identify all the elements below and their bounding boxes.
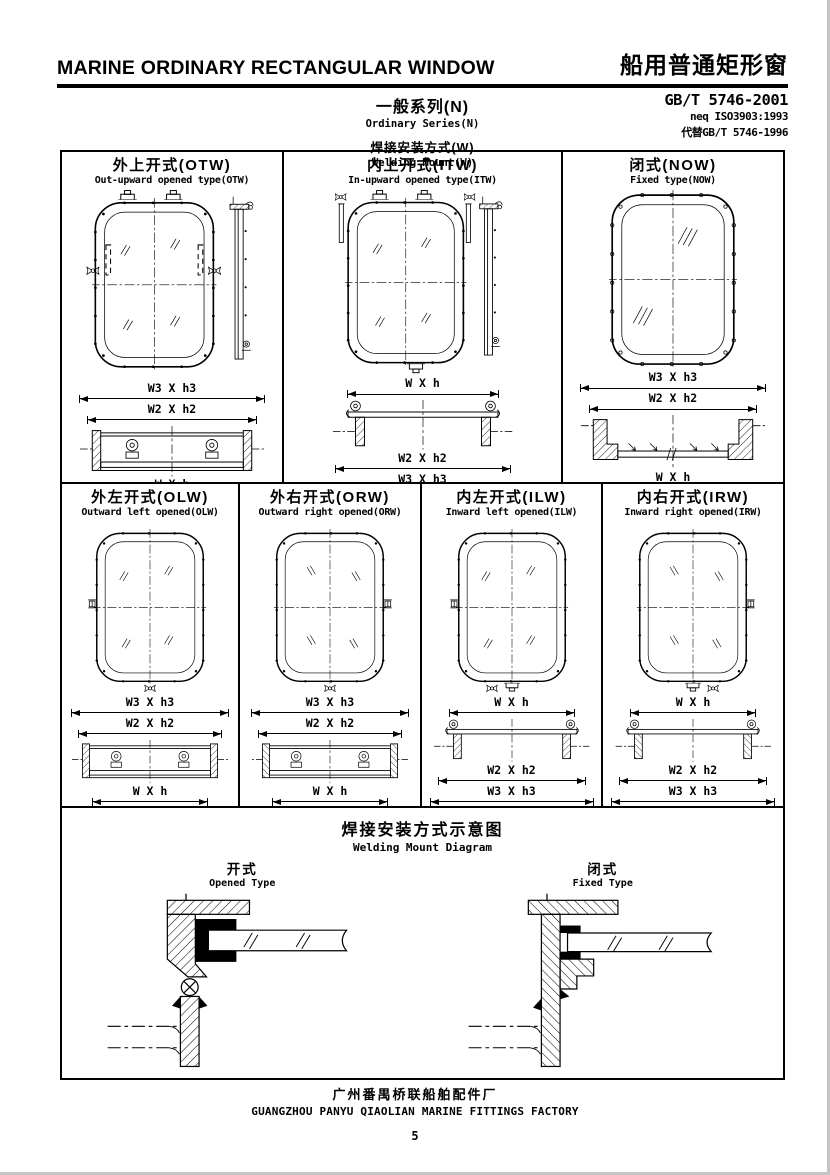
standard-neq: neq ISO3903:1993	[664, 110, 788, 123]
panel-now-title-en: Fixed type(NOW)	[630, 175, 716, 187]
welding-title-zh: 焊接安装方式示意图	[341, 816, 503, 840]
drawing-row-3: 焊接安装方式示意图 Welding Mount Diagram 开式 Opene…	[62, 808, 783, 1078]
dim-label: W X h	[630, 696, 756, 708]
dim-label: W X h	[102, 478, 242, 482]
welding-fixed-label-zh: 闭式	[587, 858, 618, 878]
drawing-row-2: 外左开式(OLW) Outward left opened(OLW) W3 X …	[62, 484, 783, 808]
dim-arrow-line	[589, 405, 757, 413]
dim-label: W2 X h2	[589, 392, 757, 404]
panel-olw-title-zh: 外左开式(OLW)	[91, 489, 209, 507]
welding-opened-figure: 开式 Opened Type	[62, 858, 423, 1078]
page-header: MARINE ORDINARY RECTANGULAR WINDOW 船用普通矩…	[57, 46, 788, 162]
panel-olw: 外左开式(OLW) Outward left opened(OLW) W3 X …	[62, 484, 240, 806]
olw-dim-w3h3: W3 X h3	[71, 696, 229, 717]
welding-fixed-figure: 闭式 Fixed Type	[423, 858, 784, 1078]
panel-ilw-title-en: Inward left opened(ILW)	[446, 507, 578, 519]
welding-fixed-label-en: Fixed Type	[573, 878, 633, 889]
orw-dim-w3h3: W3 X h3	[251, 696, 409, 717]
dim-arrow-line	[630, 709, 756, 717]
now-dim-wh: W X h	[611, 471, 735, 482]
dim-arrow-line	[580, 384, 766, 392]
dim-arrow-line	[335, 465, 511, 473]
olw-dim-wh: W X h	[92, 785, 208, 806]
itw-front-view-drawing	[340, 190, 506, 375]
page-footer: 广州番禺桥联船舶配件厂 GUANGZHOU PANYU QIAOLIAN MAR…	[0, 1084, 830, 1143]
dim-arrow-line	[258, 730, 402, 738]
dim-arrow-line	[430, 798, 594, 806]
olw-front-view-drawing	[87, 522, 213, 694]
panel-otw-title-zh: 外上开式(OTW)	[113, 157, 231, 175]
panel-irw-title-en: Inward right opened(IRW)	[624, 507, 761, 519]
welding-opened-label-en: Opened Type	[209, 878, 275, 889]
irw-front-view-drawing	[630, 522, 756, 694]
dim-label: W3 X h3	[580, 371, 766, 383]
panel-otw: 外上开式(OTW) Out-upward opened type(OTW) W3…	[62, 152, 284, 482]
dim-label: W3 X h3	[326, 473, 520, 482]
irw-section-drawing	[615, 719, 771, 762]
panel-otw-title-en: Out-upward opened type(OTW)	[95, 175, 249, 187]
standards-block: GB/T 5746-2001 neq ISO3903:1993 代替GB/T 5…	[664, 91, 788, 140]
panel-now-title-zh: 闭式(NOW)	[629, 157, 716, 175]
dim-label: W2 X h2	[619, 764, 767, 776]
orw-dim-w2h2: W2 X h2	[258, 717, 402, 738]
dim-label: W2 X h2	[335, 452, 511, 464]
page-number: 5	[0, 1129, 830, 1143]
orw-dim-wh: W X h	[272, 785, 388, 806]
itw-dim-w2h2: W2 X h2	[335, 452, 511, 473]
otw-section-drawing	[80, 426, 264, 477]
panel-itw-title-zh: 内上开式(ITW)	[367, 157, 478, 175]
now-section-drawing	[581, 415, 765, 469]
dim-arrow-line	[611, 798, 775, 806]
standard-replaces: 代替GB/T 5746-1996	[664, 124, 788, 140]
itw-dim-w3h3: W3 X h3	[326, 473, 520, 482]
ilw-dim-wh: W X h	[449, 696, 575, 717]
dim-label: W3 X h3	[251, 696, 409, 708]
panel-olw-title-en: Outward left opened(OLW)	[81, 507, 218, 519]
olw-dim-w2h2: W2 X h2	[78, 717, 222, 738]
panel-orw-title-en: Outward right opened(ORW)	[258, 507, 401, 519]
factory-name-zh: 广州番禺桥联船舶配件厂	[0, 1084, 830, 1103]
now-dim-w3h3: W3 X h3	[580, 371, 766, 392]
panel-now: 闭式(NOW) Fixed type(NOW) W3 X h3 W2 X h2	[563, 152, 783, 482]
catalog-page: MARINE ORDINARY RECTANGULAR WINDOW 船用普通矩…	[0, 0, 830, 1175]
dim-label: W X h	[347, 377, 499, 389]
panel-itw-title-en: In-upward opened type(ITW)	[348, 175, 497, 187]
dim-label: W3 X h3	[79, 382, 265, 394]
dim-label: W2 X h2	[78, 717, 222, 729]
otw-front-view-drawing	[87, 190, 257, 380]
standard-number: GB/T 5746-2001	[664, 91, 788, 109]
panel-orw: 外右开式(ORW) Outward right opened(ORW) W3 X…	[240, 484, 422, 806]
drawing-grid-frame: 外上开式(OTW) Out-upward opened type(OTW) W3…	[60, 150, 785, 1080]
panel-ilw-title-zh: 内左开式(ILW)	[456, 489, 566, 507]
welding-fixed-drawing	[463, 891, 743, 1078]
page-title-en: MARINE ORDINARY RECTANGULAR WINDOW	[57, 57, 495, 80]
dim-arrow-line	[251, 709, 409, 717]
ilw-front-view-drawing	[449, 522, 575, 694]
welding-opened-drawing	[102, 891, 382, 1078]
panel-irw-title-zh: 内右开式(IRW)	[637, 489, 749, 507]
itw-section-drawing	[333, 400, 513, 450]
ilw-section-drawing	[434, 719, 590, 762]
welding-figures: 开式 Opened Type 闭式 Fixed Type	[62, 858, 783, 1078]
dim-arrow-line	[449, 709, 575, 717]
dim-arrow-line	[619, 777, 767, 785]
orw-section-drawing	[252, 740, 408, 783]
irw-dim-w3h3: W3 X h3	[611, 785, 775, 806]
title-row: MARINE ORDINARY RECTANGULAR WINDOW 船用普通矩…	[57, 46, 788, 88]
panel-itw: 内上开式(ITW) In-upward opened type(ITW) W X…	[284, 152, 563, 482]
dim-label: W X h	[272, 785, 388, 797]
orw-front-view-drawing	[267, 522, 393, 694]
dim-label: W3 X h3	[71, 696, 229, 708]
dim-arrow-line	[92, 798, 208, 806]
panel-welding-diagram: 焊接安装方式示意图 Welding Mount Diagram 开式 Opene…	[62, 808, 783, 1078]
dim-label: W X h	[449, 696, 575, 708]
ilw-dim-w2h2: W2 X h2	[438, 764, 586, 785]
dim-label: W X h	[92, 785, 208, 797]
dim-arrow-line	[79, 395, 265, 403]
welding-opened-label-zh: 开式	[227, 858, 258, 878]
dim-arrow-line	[347, 390, 499, 398]
dim-arrow-line	[272, 798, 388, 806]
now-dim-w2h2: W2 X h2	[589, 392, 757, 413]
dim-arrow-line	[87, 416, 257, 424]
panel-orw-title-zh: 外右开式(ORW)	[270, 489, 390, 507]
otw-dim-w3h3: W3 X h3	[79, 382, 265, 403]
panel-ilw: 内左开式(ILW) Inward left opened(ILW) W X h …	[422, 484, 603, 806]
irw-dim-wh: W X h	[630, 696, 756, 717]
welding-title-en: Welding Mount Diagram	[353, 841, 492, 854]
dim-label: W2 X h2	[87, 403, 257, 415]
otw-dim-w2h2: W2 X h2	[87, 403, 257, 424]
dim-label: W3 X h3	[611, 785, 775, 797]
dim-label: W2 X h2	[438, 764, 586, 776]
dim-arrow-line	[71, 709, 229, 717]
itw-dim-wh: W X h	[347, 377, 499, 398]
drawing-row-1: 外上开式(OTW) Out-upward opened type(OTW) W3…	[62, 152, 783, 484]
irw-dim-w2h2: W2 X h2	[619, 764, 767, 785]
otw-dim-wh: W X h	[102, 478, 242, 482]
factory-name-en: GUANGZHOU PANYU QIAOLIAN MARINE FITTINGS…	[0, 1105, 830, 1118]
now-front-view-drawing	[609, 190, 737, 369]
dim-label: W X h	[611, 471, 735, 482]
olw-section-drawing	[72, 740, 228, 783]
dim-arrow-line	[78, 730, 222, 738]
dim-label: W3 X h3	[430, 785, 594, 797]
panel-irw: 内右开式(IRW) Inward right opened(IRW) W X h…	[603, 484, 783, 806]
page-title-zh: 船用普通矩形窗	[620, 46, 788, 80]
ilw-dim-w3h3: W3 X h3	[430, 785, 594, 806]
dim-label: W2 X h2	[258, 717, 402, 729]
dim-arrow-line	[438, 777, 586, 785]
